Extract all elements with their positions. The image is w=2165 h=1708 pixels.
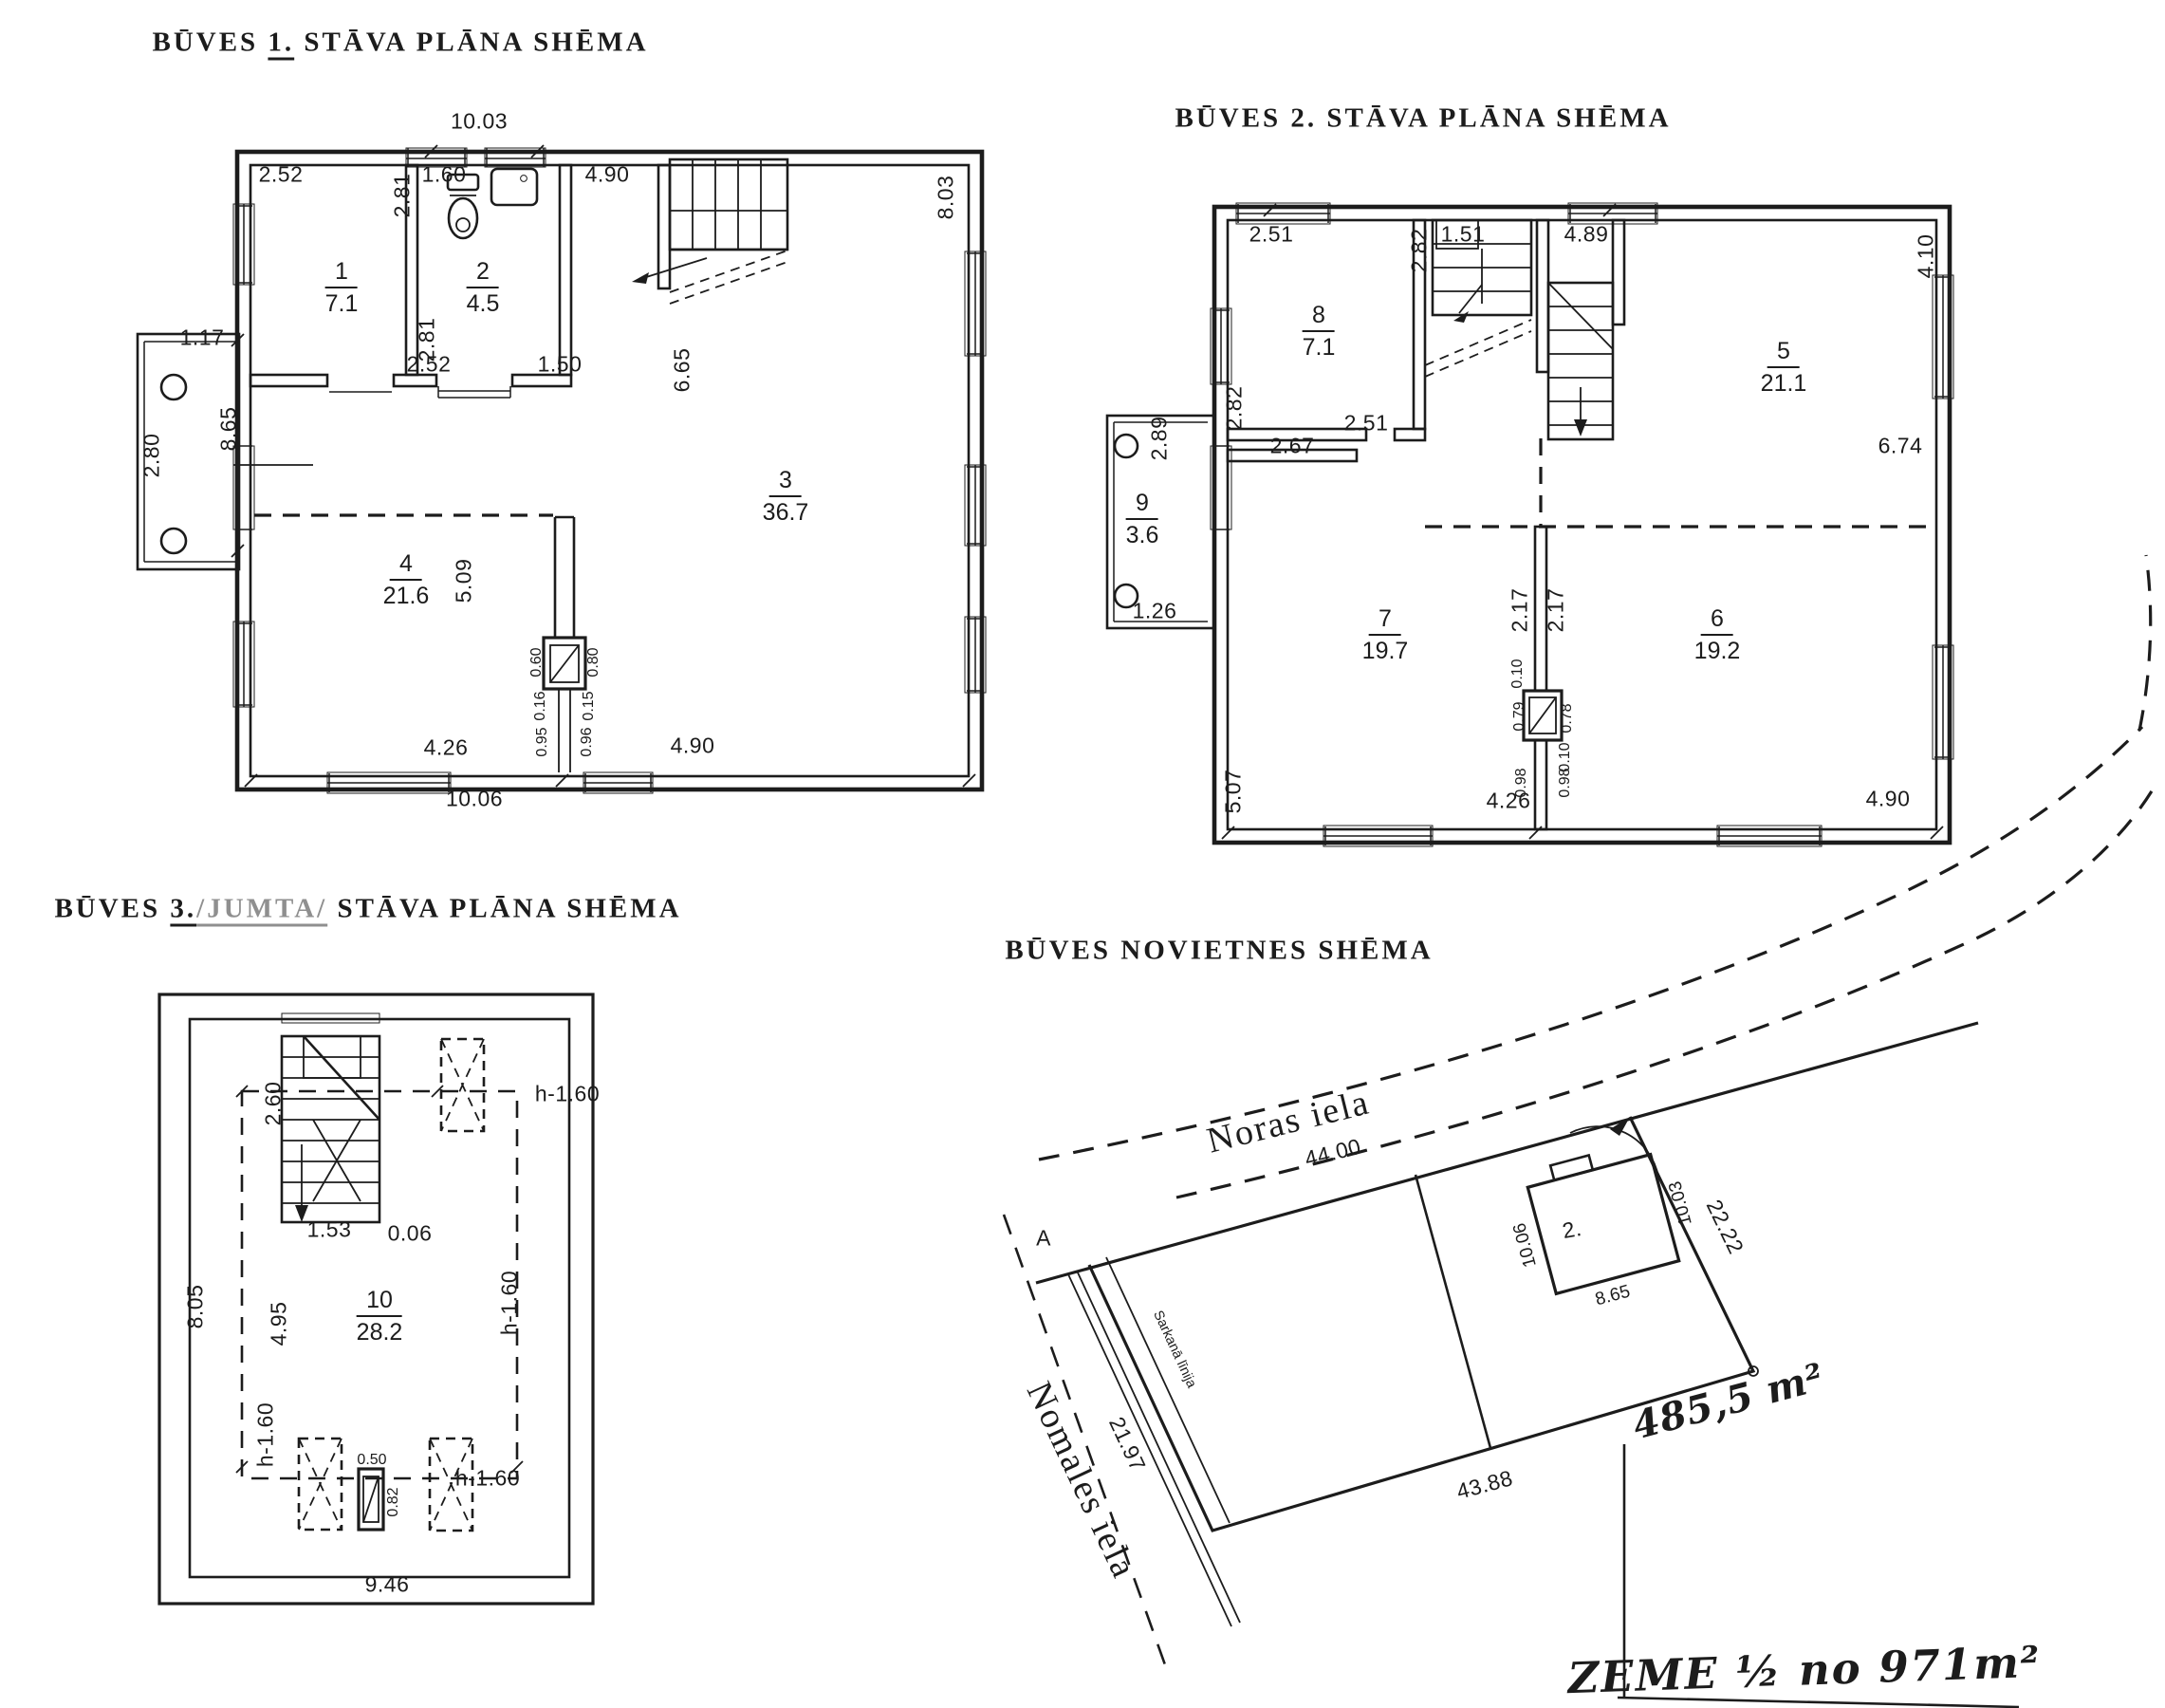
plan-title-floor2: BŪVES 2. STĀVA PLĀNA SHĒMA	[1175, 103, 1671, 135]
dim-label: 2.51	[1344, 411, 1389, 436]
dim-label: 5.07	[1221, 770, 1247, 814]
street-name-nomales: Nomales iela	[1018, 1375, 1145, 1585]
dim-label: 2.89	[1147, 417, 1173, 461]
dim-label: 6.65	[670, 348, 695, 393]
dim-label: 10.03	[1665, 1179, 1697, 1228]
dim-label: 21.97	[1103, 1413, 1151, 1476]
dim-label: 1.53	[307, 1217, 352, 1243]
dim-label: A	[1036, 1226, 1051, 1252]
dim-label: 44.00	[1303, 1134, 1364, 1173]
dim-label: 0.82	[385, 1487, 402, 1516]
plan-title-part: /JUMTA/	[196, 894, 327, 924]
plot-area-annotation: 485,5 m²	[1628, 1355, 1829, 1449]
dim-label: 0.79	[1511, 701, 1528, 731]
dim-label: 6.74	[1878, 434, 1923, 459]
room-label-10: 1028.2	[357, 1287, 403, 1346]
plan-title-part: STĀVA PLĀNA SHĒMA	[327, 894, 681, 924]
dim-label: 10.06	[446, 787, 503, 812]
dim-label: 10.03	[451, 109, 508, 135]
room-area: 4.5	[467, 290, 500, 318]
dim-label: 4.90	[671, 733, 715, 759]
dim-label: 4.89	[1564, 222, 1609, 248]
dim-label: 22.22	[1701, 1196, 1749, 1258]
dim-label: 1.51	[1441, 222, 1486, 248]
room-label-1: 17.1	[325, 258, 359, 318]
dim-label: 2.80	[139, 434, 165, 478]
dim-label: 0.16	[532, 691, 549, 720]
dim-label: 1.26	[1133, 599, 1177, 624]
dim-label: 2.82	[1222, 386, 1248, 431]
dim-label: 2.17	[1508, 588, 1533, 633]
room-number: 3	[769, 467, 802, 497]
dim-label: 2.52	[259, 162, 304, 188]
room-area: 7.1	[1303, 334, 1336, 362]
room-label-6: 619.2	[1694, 605, 1741, 665]
dim-label: 0.95	[534, 727, 551, 756]
room-area: 3.6	[1126, 522, 1159, 549]
building-number: 2.	[1561, 1216, 1584, 1244]
dim-label: 0.10	[1509, 659, 1527, 688]
land-share-annotation: ZEME ½ no 971m²	[1567, 1637, 2043, 1703]
plan-title-site: BŪVES NOVIETNES SHĒMA	[1005, 936, 1433, 967]
room-number: 5	[1767, 338, 1800, 368]
dim-label: 2.51	[1249, 222, 1294, 248]
dim-label: 0.50	[357, 1452, 386, 1469]
room-number: 4	[390, 550, 422, 581]
dim-label: 4.10	[1914, 234, 1939, 279]
dim-label: 4.90	[585, 162, 630, 188]
dim-label: 0.78	[1559, 703, 1576, 733]
dim-label: 0.60	[528, 647, 546, 677]
room-number: 1	[325, 258, 358, 288]
dim-label: 2.67	[1270, 434, 1315, 459]
dim-label: h-1.60	[455, 1466, 520, 1492]
dim-label: 2.60	[261, 1082, 287, 1126]
plan-title-part: BŪVES	[54, 894, 170, 924]
plan-title-part: STĀVA PLĀNA SHĒMA	[294, 28, 648, 58]
dim-label: 4.90	[1866, 787, 1911, 812]
dim-label: 43.88	[1453, 1465, 1515, 1505]
room-label-7: 719.7	[1362, 605, 1409, 665]
dim-label: 5.09	[452, 559, 477, 603]
dim-label: 9.46	[365, 1572, 410, 1598]
dim-label: 8.05	[183, 1285, 209, 1329]
room-number: 10	[357, 1287, 402, 1317]
room-number: 6	[1701, 605, 1733, 636]
room-label-5: 521.1	[1761, 338, 1807, 398]
plan-title-part: BŪVES	[152, 28, 268, 58]
room-number: 2	[467, 258, 499, 288]
room-area: 28.2	[357, 1319, 403, 1346]
dim-label: 2.81	[415, 318, 440, 362]
labels-layer: 10.032.522.811.604.908.031.172.808.652.5…	[0, 0, 2165, 1708]
dim-label: 2.81	[390, 174, 416, 218]
dim-label: 10.06	[1509, 1220, 1542, 1270]
dim-label: 4.95	[267, 1302, 292, 1346]
dim-label: 8.03	[934, 176, 959, 220]
red-line-label: Sarkanā līnija	[1150, 1309, 1199, 1390]
dim-label: 1.60	[422, 162, 467, 188]
room-label-4: 421.6	[383, 550, 430, 610]
room-area: 7.1	[325, 290, 359, 318]
dim-label: 0.80	[585, 647, 602, 677]
plan-title-part: 1.	[268, 28, 294, 58]
drawing-canvas: 10.032.522.811.604.908.031.172.808.652.5…	[0, 0, 2165, 1708]
room-number: 8	[1303, 302, 1335, 332]
room-area: 21.1	[1761, 370, 1807, 398]
room-area: 21.6	[383, 583, 430, 610]
dim-label: 0.15	[581, 691, 598, 720]
room-label-8: 87.1	[1303, 302, 1336, 362]
dim-label: h-1.60	[253, 1402, 279, 1467]
dim-label: h-1.60	[497, 1271, 523, 1335]
dim-label: 2.82	[1407, 229, 1433, 273]
room-area: 19.7	[1362, 638, 1409, 665]
room-label-2: 24.5	[467, 258, 500, 318]
plan-title-floor1: BŪVES 1. STĀVA PLĀNA SHĒMA	[152, 28, 648, 59]
plan-title-part: BŪVES NOVIETNES SHĒMA	[1005, 936, 1433, 966]
dim-label: 0.98	[1557, 768, 1574, 797]
plan-title-floor3: BŪVES 3./JUMTA/ STĀVA PLĀNA SHĒMA	[54, 894, 681, 925]
room-area: 36.7	[763, 499, 809, 527]
room-number: 9	[1126, 490, 1158, 520]
dim-label: 2.17	[1544, 588, 1569, 633]
dim-label: 0.96	[579, 727, 596, 756]
plan-title-part: 3.	[170, 894, 196, 924]
dim-label: 4.26	[424, 735, 469, 761]
dim-label: 8.65	[1593, 1282, 1632, 1311]
room-label-3: 336.7	[763, 467, 809, 527]
room-label-9: 93.6	[1126, 490, 1159, 549]
room-area: 19.2	[1694, 638, 1741, 665]
dim-label: 1.17	[180, 325, 225, 351]
dim-label: h-1.60	[535, 1082, 600, 1107]
dim-label: 0.06	[388, 1221, 433, 1247]
room-number: 7	[1369, 605, 1401, 636]
dim-label: 4.26	[1487, 789, 1531, 814]
plan-title-part: BŪVES 2. STĀVA PLĀNA SHĒMA	[1175, 103, 1671, 134]
dim-label: 8.65	[216, 407, 242, 452]
dim-label: 1.50	[538, 352, 583, 378]
